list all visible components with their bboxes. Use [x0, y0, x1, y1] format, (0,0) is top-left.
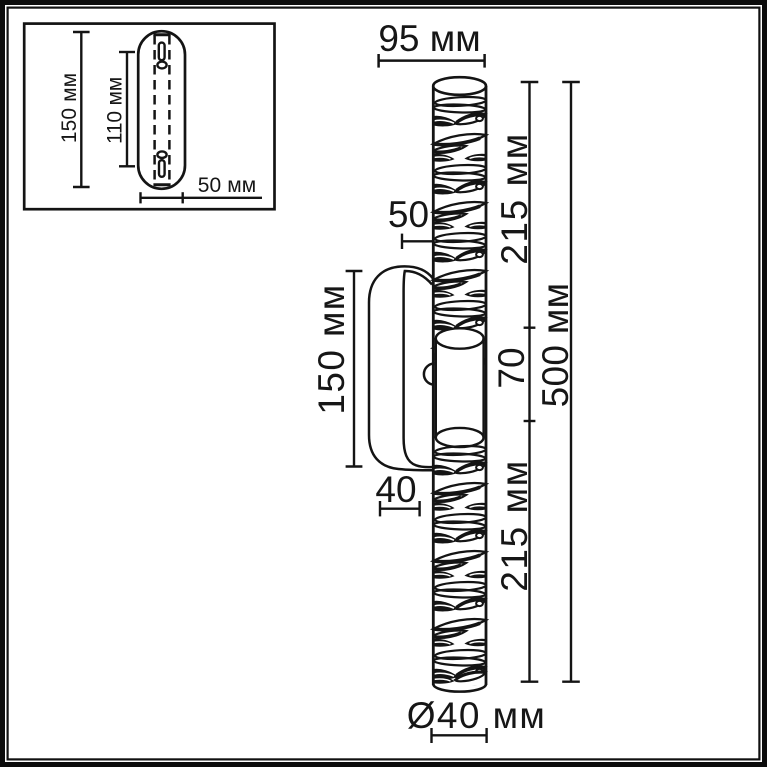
svg-text:95 мм: 95 мм [378, 18, 480, 59]
svg-text:50: 50 [388, 194, 429, 235]
svg-text:215 мм: 215 мм [494, 459, 535, 592]
svg-text:500 мм: 500 мм [535, 283, 576, 408]
svg-text:70: 70 [491, 347, 532, 388]
svg-text:150 мм: 150 мм [311, 283, 352, 414]
svg-text:50 мм: 50 мм [198, 174, 257, 197]
svg-text:Ø40 мм: Ø40 мм [407, 695, 547, 736]
svg-text:215 мм: 215 мм [494, 132, 535, 265]
svg-text:150 мм: 150 мм [58, 73, 81, 143]
svg-text:110 мм: 110 мм [104, 77, 127, 144]
svg-text:40: 40 [375, 469, 416, 510]
